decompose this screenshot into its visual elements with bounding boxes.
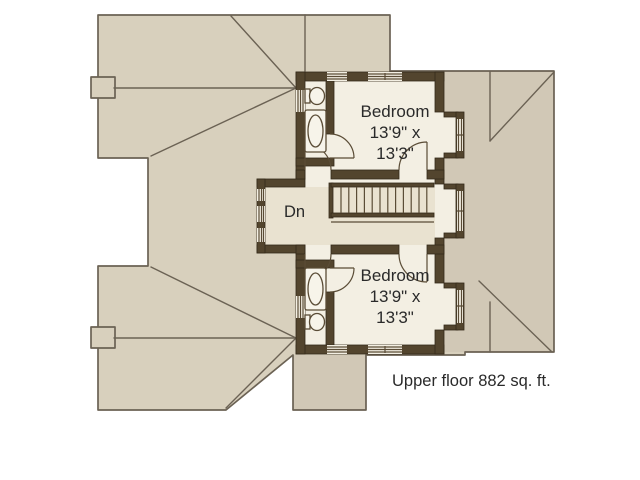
- divider-bottom-b: [331, 245, 399, 254]
- window-bottom-2: [368, 345, 402, 354]
- divider-top-b: [331, 170, 399, 179]
- window-top-1: [327, 72, 347, 81]
- floor-plan-page: Bedroom 13'9" x 13'3" Bedroom 13'9" x 13…: [0, 0, 640, 480]
- window-left-bath-bottom: [296, 296, 305, 318]
- wall-right-1: [435, 72, 444, 112]
- chimney-bottom-left: [91, 327, 115, 348]
- window-top-2: [368, 72, 402, 81]
- window-hall-1: [257, 189, 265, 201]
- bath-top-wall-east: [326, 81, 334, 134]
- stairs-down-label: Dn: [284, 203, 305, 221]
- bedroom-bottom-size-2: 13'3": [376, 308, 414, 327]
- floor-plan-drawing: Bedroom 13'9" x 13'3" Bedroom 13'9" x 13…: [0, 0, 640, 480]
- bathtub-basin-bottom: [308, 273, 323, 305]
- bedroom-bottom-label: Bedroom: [361, 266, 430, 285]
- window-left-bath-top: [296, 90, 305, 112]
- bedroom-top-label: Bedroom: [361, 102, 430, 121]
- roof-shade-bottom: [293, 355, 366, 410]
- stair-rail-top: [331, 183, 434, 187]
- floor-area-caption: Upper floor 882 sq. ft.: [392, 372, 551, 390]
- toilet-bowl-top: [310, 88, 325, 105]
- bedroom-top-size-2: 13'3": [376, 144, 414, 163]
- divider-top-c: [427, 170, 444, 179]
- wall-right-4: [435, 330, 444, 354]
- window-bottom-1: [327, 345, 347, 354]
- stair-rail-bottom: [331, 213, 434, 217]
- bath-bottom-wall-east: [326, 292, 334, 345]
- window-hall-2: [257, 206, 265, 222]
- bedroom-top-size-1: 13'9" x: [370, 123, 421, 142]
- bedroom-bottom-size-1: 13'9" x: [370, 287, 421, 306]
- divider-bottom-a: [296, 245, 305, 254]
- bath-fixtures-bottom: [305, 268, 326, 331]
- bathtub-basin-top: [308, 115, 323, 147]
- divider-top-a: [296, 170, 305, 179]
- toilet-bowl-bottom: [310, 314, 325, 331]
- window-hall-3: [257, 228, 265, 242]
- bath-fixtures-top: [305, 88, 326, 153]
- chimney-top-left: [91, 77, 115, 98]
- divider-bottom-c: [427, 245, 444, 254]
